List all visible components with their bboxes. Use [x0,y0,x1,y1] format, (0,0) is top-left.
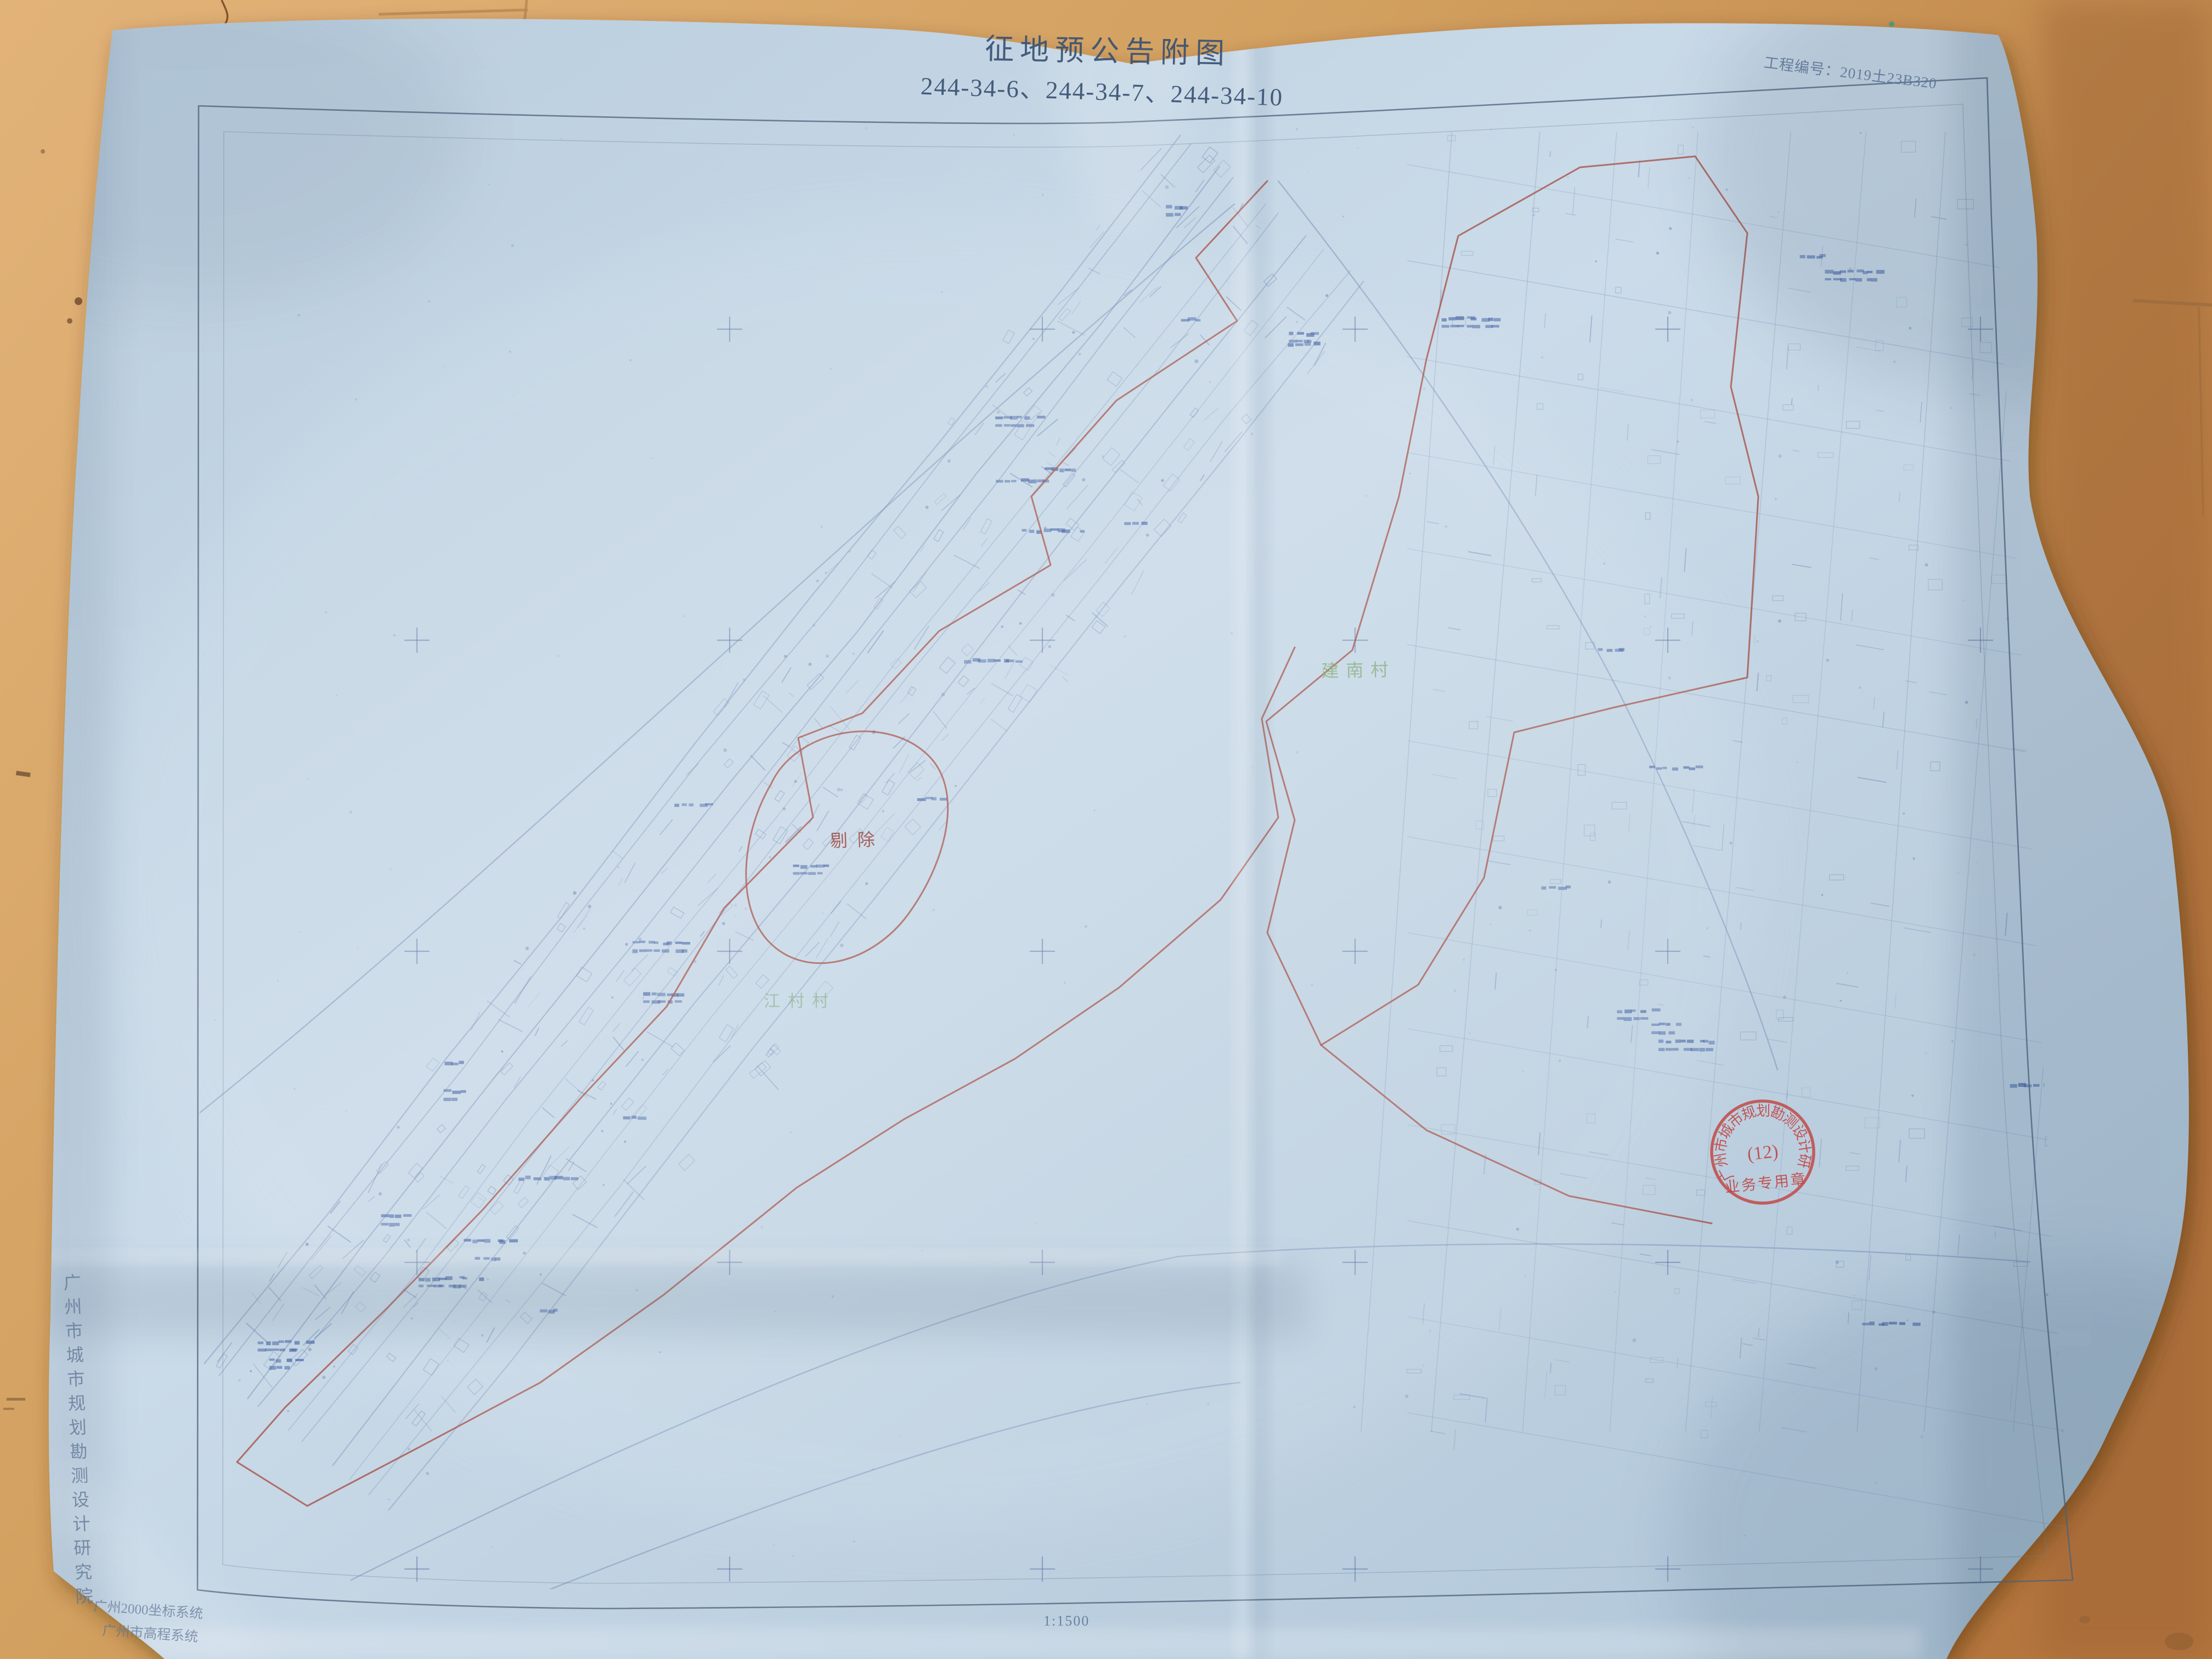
map-scale: 1:1500 [1043,1613,1090,1629]
floor-speck [41,149,45,154]
photo-of-blueprint-map: 广州市城市规划勘测设计研究院 (12) 业务专用章 征地预公告附图 244-34… [0,0,2212,1659]
floor-mark [7,1398,25,1401]
vertical-fold-shadow [1252,0,1268,1659]
horizontal-fold-highlight [44,1252,1278,1263]
excluded-area-label: 剔除 [830,826,885,853]
village-label-jiangcun: 江村村 [764,988,836,1012]
floor-smudge [2165,1633,2193,1650]
map-title: 征地预公告附图 [899,24,1317,74]
teal-speck [1889,21,1894,27]
stamp-center-number: (12) [1746,1141,1779,1165]
floor-speck [75,297,82,305]
scene-canvas: 广州市城市规划勘测设计研究院 (12) 业务专用章 [0,0,2212,1659]
floor-speck [67,318,72,324]
village-label-jiannan: 建南村 [1321,656,1396,682]
bottom-edge-fold-highlight [143,1628,1920,1659]
vertical-fold-highlight [1235,0,1250,1659]
floor-smudge [2079,1616,2090,1623]
floor-mark [3,1408,14,1410]
horizontal-fold-shadow [44,1265,1306,1336]
